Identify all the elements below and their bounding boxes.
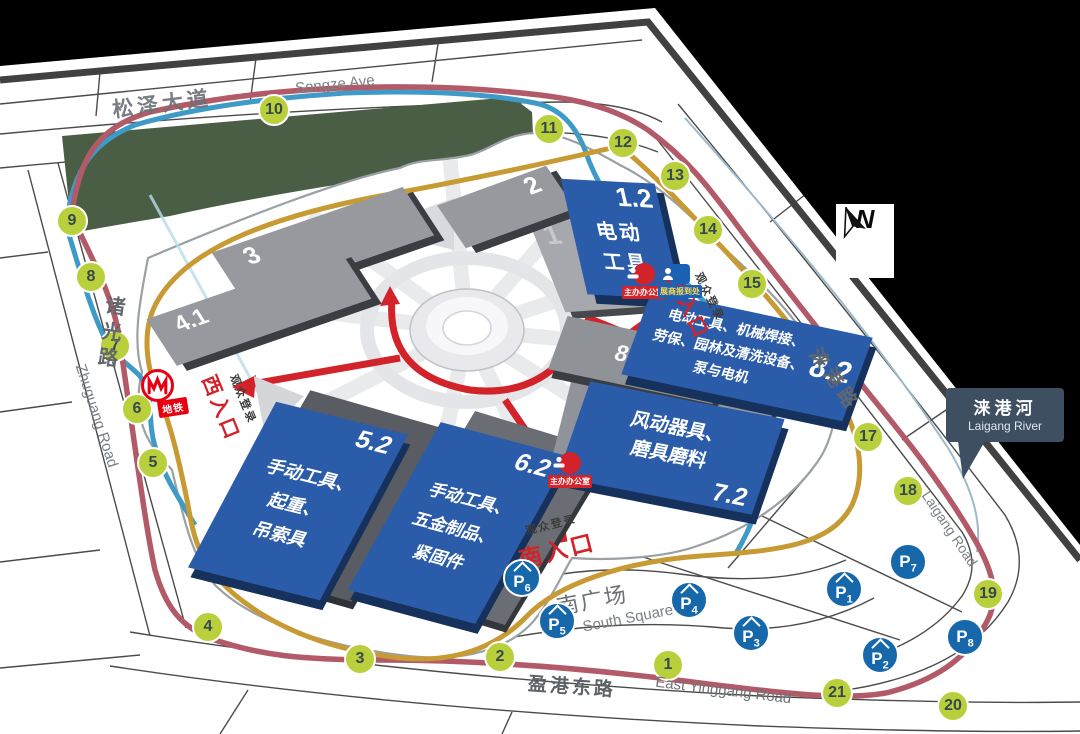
- organizer-icon: [633, 263, 655, 285]
- gate-marker-19: 19: [972, 578, 1004, 610]
- parking-label: P6: [505, 572, 539, 594]
- river-callout-pointer: [958, 441, 985, 479]
- parking-label: P1: [827, 583, 861, 605]
- hall-number: 4.1: [168, 303, 213, 337]
- gate-marker-20: 20: [937, 690, 969, 722]
- parking-label: P5: [540, 615, 574, 637]
- parking-marker-P1: P1: [825, 570, 863, 608]
- gate-marker-9: 9: [56, 205, 88, 237]
- gate-marker-2: 2: [484, 641, 516, 673]
- organizer-office-label: 主办办公室: [548, 475, 592, 488]
- exhibitor-icon: [670, 264, 690, 284]
- hall-number: 3: [237, 241, 266, 271]
- hall-number: 5.2: [350, 426, 398, 461]
- river-name-zh: 涞港河: [946, 394, 1064, 419]
- gate-marker-18: 18: [892, 475, 924, 507]
- parking-marker-P3: P3: [732, 614, 770, 652]
- gate-marker-10: 10: [258, 94, 290, 126]
- gate-marker-12: 12: [607, 127, 639, 159]
- gate-marker-3: 3: [344, 643, 376, 675]
- gate-marker-5: 5: [137, 447, 169, 479]
- parking-marker-P2: P2: [861, 636, 899, 674]
- gate-marker-17: 17: [852, 421, 884, 453]
- parking-marker-P8: P8: [946, 618, 984, 656]
- gate-marker-11: 11: [533, 113, 565, 145]
- gate-marker-14: 14: [692, 214, 724, 246]
- parking-label: P2: [863, 649, 897, 671]
- organizer-icon: [559, 452, 581, 474]
- central-ring-building: [410, 289, 524, 371]
- gate-marker-8: 8: [75, 261, 107, 293]
- organizer-office-south: 主办办公室: [548, 452, 592, 488]
- metro-icon: [141, 369, 174, 402]
- parking-label: P4: [672, 594, 706, 616]
- compass: N: [836, 204, 894, 278]
- gate-marker-15: 15: [736, 268, 768, 300]
- gate-marker-4: 4: [192, 611, 224, 643]
- parking-marker-P6: P6: [503, 559, 541, 597]
- parking-label: P8: [948, 627, 982, 649]
- venue-map: 123456789101112131415161718192021 1 5.1 …: [0, 0, 1080, 734]
- exhibitor-checkin-label: 展商报到处: [658, 285, 702, 298]
- hall-number: 2: [518, 171, 548, 201]
- parking-marker-P4: P4: [670, 581, 708, 619]
- river-callout: 涞港河 Laigang River: [946, 388, 1064, 442]
- gate-marker-13: 13: [659, 160, 691, 192]
- parking-label: P3: [734, 627, 768, 649]
- river-name-en: Laigang River: [946, 419, 1064, 433]
- gate-marker-21: 21: [821, 677, 853, 709]
- exhibitor-checkin-east: 展商报到处: [658, 264, 702, 298]
- hall-number: 1.2: [612, 181, 655, 214]
- parking-label: P7: [891, 552, 925, 574]
- parking-marker-P5: P5: [538, 602, 576, 640]
- hall-roof-label-1: 1: [538, 219, 566, 251]
- parking-marker-P7: P7: [889, 543, 927, 581]
